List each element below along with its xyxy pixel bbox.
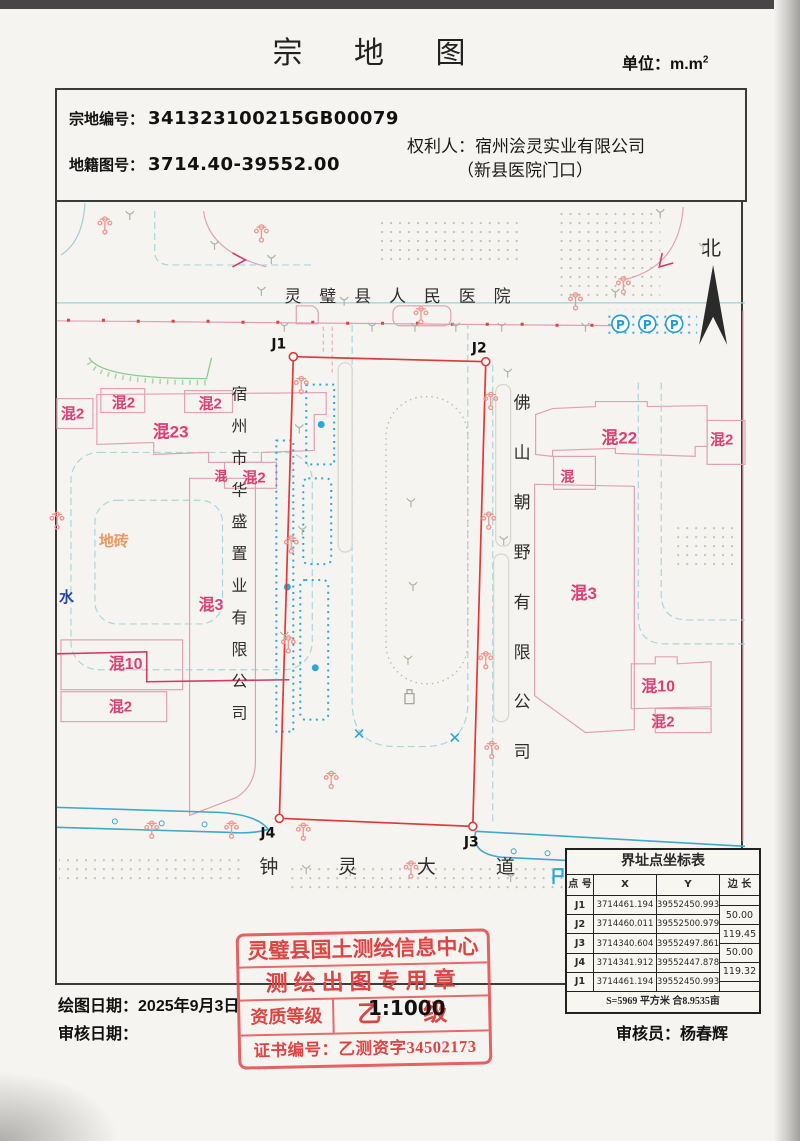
area-note: S=5969 平方米 合8.9535亩 xyxy=(567,992,759,1012)
draw-date-value: 2025年9月3日 xyxy=(138,998,239,1015)
paving-dots-bottom-1 xyxy=(59,853,240,883)
map-label-15: 混2 xyxy=(710,431,733,448)
coords-table-title: 界址点坐标表 xyxy=(567,850,759,875)
parcel-number-value: 341323100215GB00079 xyxy=(148,108,399,129)
map-label-6: 混2 xyxy=(112,395,135,412)
official-stamp: 灵璧县国土测绘信息中心 测绘出图专用章 资质等级 乙 级 证书编号：乙测资字34… xyxy=(236,928,493,1069)
boundary-point-label-J4: J4 xyxy=(259,825,275,841)
map-label-14: 混22 xyxy=(601,428,637,447)
paving-dots-area-1 xyxy=(381,215,521,261)
walkway-strip-right-b xyxy=(494,554,509,722)
side-length-2: 50.00 xyxy=(720,944,759,963)
road-curve-left-edge xyxy=(61,203,85,255)
map-label-12: 混10 xyxy=(109,655,143,673)
map-label-4-char-3: 野 xyxy=(514,543,531,562)
coords-row-4: J13714461.19439552450.993 xyxy=(567,973,720,991)
coords-cell: 3714341.912 xyxy=(594,954,657,972)
stamp-grade-row: 资质等级 乙 级 xyxy=(240,996,489,1036)
map-label-1: 灵璧县人民医院 xyxy=(284,287,528,306)
scan-edge-top xyxy=(0,0,800,9)
col-header-length: 边 长 xyxy=(720,875,759,895)
map-label-5: 混2 xyxy=(61,406,84,423)
dashed-curb-topleft xyxy=(155,211,315,265)
wall-line-left xyxy=(57,652,289,682)
walkway-strip-right-a xyxy=(496,385,511,547)
map-label-13: 混2 xyxy=(109,699,132,716)
map-label-4-char-2: 朝 xyxy=(514,493,531,512)
paving-dots-area-3 xyxy=(677,524,739,570)
side-length-end-spacer xyxy=(720,982,759,991)
map-label-3-char-8: 限 xyxy=(231,641,247,659)
coords-cell: 39552450.993 xyxy=(657,973,720,991)
road-corner-topleft xyxy=(204,211,267,267)
boundary-point-label-J2: J2 xyxy=(471,341,487,357)
col-header-point: 点 号 xyxy=(567,875,594,895)
sheet-number-row: 地籍图号： 3714.40-39552.00 xyxy=(69,154,340,175)
map-label-21: 水 xyxy=(59,588,75,606)
owner-value: 宿州浍灵实业有限公司 xyxy=(475,137,645,156)
scan-corner-shadow xyxy=(0,1071,120,1141)
map-label-4-char-4: 有 xyxy=(514,593,531,612)
stamp-purpose: 测绘出图专用章 xyxy=(239,963,488,1001)
map-label-4-char-0: 佛 xyxy=(514,394,531,413)
parcel-number-label: 宗地编号： xyxy=(69,111,144,128)
sheet-number-value: 3714.40-39552.00 xyxy=(148,154,340,175)
street-lamps xyxy=(50,217,630,878)
building-hun3-right xyxy=(535,484,635,732)
map-label-3-char-2: 市 xyxy=(231,449,247,467)
stamp-grade-label: 资质等级 xyxy=(240,1000,335,1035)
scanned-parcel-map-page: 宗 地 图 单位：m.m2 宗地编号： 341323100215GB00079 … xyxy=(0,0,800,1141)
map-label-8: 混23 xyxy=(153,422,189,441)
scan-edge-right xyxy=(774,0,800,1141)
boundary-point-J4 xyxy=(275,814,283,822)
slope-hatch xyxy=(89,363,207,383)
map-label-2: 钟灵大道 xyxy=(259,856,574,878)
sheet-number-label: 地籍图号： xyxy=(69,157,144,174)
stamp-org-name: 灵璧县国土测绘信息中心 xyxy=(239,931,488,968)
boundary-point-J2 xyxy=(482,358,490,366)
map-label-4-char-5: 限 xyxy=(514,643,531,662)
coords-table: 界址点坐标表 点 号 X Y 边 长 J13714461.19439552450… xyxy=(565,848,761,1014)
coords-cell: 39552500.979 xyxy=(657,915,720,933)
reviewer-row: 审核员：杨春辉 xyxy=(616,1020,728,1044)
map-label-10: 混2 xyxy=(242,469,265,486)
map-label-3-char-10: 司 xyxy=(231,706,247,723)
map-label-0: 北 xyxy=(701,237,721,260)
reviewer-label: 审核员： xyxy=(616,1026,680,1043)
boundary-point-J3 xyxy=(469,822,477,830)
map-label-3-char-5: 置 xyxy=(231,546,247,563)
x-markers xyxy=(355,730,459,742)
coords-cell: J1 xyxy=(567,896,594,914)
col-header-x: X xyxy=(594,875,657,895)
draw-date-row: 绘图日期：2025年9月3日 xyxy=(58,992,239,1016)
dashed-road-right-b xyxy=(661,383,745,620)
map-label-19: 混2 xyxy=(651,714,674,731)
tree-dot-1 xyxy=(318,421,325,428)
boundary-point-label-J1: J1 xyxy=(270,337,286,353)
tree-dot-2 xyxy=(284,584,291,591)
dashed-road-right-a xyxy=(638,383,745,644)
coords-cell: 3714461.194 xyxy=(594,896,657,914)
map-label-3-char-9: 公 xyxy=(231,674,247,691)
col-header-y: Y xyxy=(657,875,720,895)
owner-label: 权利人： xyxy=(407,137,475,156)
coords-cell: J1 xyxy=(567,973,594,991)
coords-row-2: J33714340.60439552497.861 xyxy=(567,934,720,953)
side-length-column: 50.00119.4550.00119.32 xyxy=(720,896,759,991)
gate-dashed-lines xyxy=(323,327,332,373)
coords-cell: J2 xyxy=(567,915,594,933)
north-arrow-icon xyxy=(699,265,727,345)
coords-cell: 39552497.861 xyxy=(657,934,720,952)
coords-cell: 39552447.878 xyxy=(657,954,720,972)
unit-sup: 2 xyxy=(703,55,709,66)
map-label-3-char-7: 有 xyxy=(231,609,247,627)
gate-booth-shape xyxy=(296,306,318,324)
planter-bed-3 xyxy=(300,580,328,720)
owner-note: （新县医院门口） xyxy=(457,156,593,181)
map-label-4-char-6: 公 xyxy=(514,693,531,712)
coords-table-header: 点 号 X Y 边 长 xyxy=(567,875,759,896)
coords-cell: J4 xyxy=(567,954,594,972)
side-length-3: 119.32 xyxy=(720,963,759,982)
map-label-17: 混3 xyxy=(571,584,597,603)
map-label-4-char-7: 司 xyxy=(514,743,531,762)
walkway-strip-left xyxy=(338,363,352,552)
coords-table-body: J13714461.19439552450.993J23714460.01139… xyxy=(567,896,759,992)
parcel-number-row: 宗地编号： 341323100215GB00079 xyxy=(69,108,399,129)
reviewer-value: 杨春辉 xyxy=(680,1026,728,1043)
coords-row-0: J13714461.19439552450.993 xyxy=(567,896,720,915)
map-label-3-char-6: 业 xyxy=(231,577,247,595)
paving-dots-area-2 xyxy=(561,207,661,299)
map-label-18: 混10 xyxy=(641,678,675,696)
map-label-11: 混3 xyxy=(199,596,224,614)
map-label-3-char-0: 宿 xyxy=(231,386,247,404)
side-length-1: 119.45 xyxy=(720,925,759,944)
review-date-label: 审核日期： xyxy=(58,1026,138,1043)
coords-cell: 39552450.993 xyxy=(657,896,720,914)
coords-rows: J13714461.19439552450.993J23714460.01139… xyxy=(567,896,720,991)
planter-bed-2 xyxy=(303,478,331,564)
map-label-3-char-4: 盛 xyxy=(231,513,247,531)
unit-text: 单位：m.m xyxy=(622,56,703,73)
parking-icon-0: P xyxy=(616,318,625,332)
boundary-point-J1 xyxy=(289,353,297,361)
map-label-4-char-1: 山 xyxy=(514,443,531,462)
map-scale: 1:1000 xyxy=(368,996,446,1020)
coords-row-3: J43714341.91239552447.878 xyxy=(567,954,720,973)
driveway-dashed-loop xyxy=(352,325,468,747)
side-length-0: 50.00 xyxy=(720,906,759,925)
island-dotted-oval xyxy=(386,397,468,684)
coords-cell: 3714461.194 xyxy=(594,973,657,991)
map-label-16: 混 xyxy=(561,468,575,484)
draw-date-label: 绘图日期： xyxy=(58,998,138,1015)
review-date-row: 审核日期： xyxy=(58,1020,138,1044)
map-label-20: 地砖 xyxy=(99,532,129,550)
owner-row: 权利人：宿州浍灵实业有限公司 xyxy=(407,132,645,157)
header-box: 宗地编号： 341323100215GB00079 地籍图号： 3714.40-… xyxy=(55,88,747,202)
parcel-boundary xyxy=(279,357,485,827)
coords-cell: 3714460.011 xyxy=(594,915,657,933)
coords-row-1: J23714460.01139552500.979 xyxy=(567,915,720,934)
boundary-point-label-J3: J3 xyxy=(463,834,479,850)
parking-icon-1: P xyxy=(643,318,652,332)
unit-label: 单位：m.m2 xyxy=(622,50,708,74)
map-label-9: 混 xyxy=(215,468,228,483)
hospital-fence-line xyxy=(57,321,625,326)
coords-cell: 3714340.604 xyxy=(594,934,657,952)
stamp-cert-number: 证书编号：乙测资字34502173 xyxy=(241,1031,490,1066)
tree-dot-3 xyxy=(312,664,319,671)
map-label-7: 混2 xyxy=(199,396,222,413)
parking-icon-2: P xyxy=(670,318,679,332)
monument-icon xyxy=(405,690,414,704)
coords-cell: J3 xyxy=(567,934,594,952)
side-length-spacer xyxy=(720,896,759,906)
map-label-3-char-1: 州 xyxy=(231,418,247,435)
